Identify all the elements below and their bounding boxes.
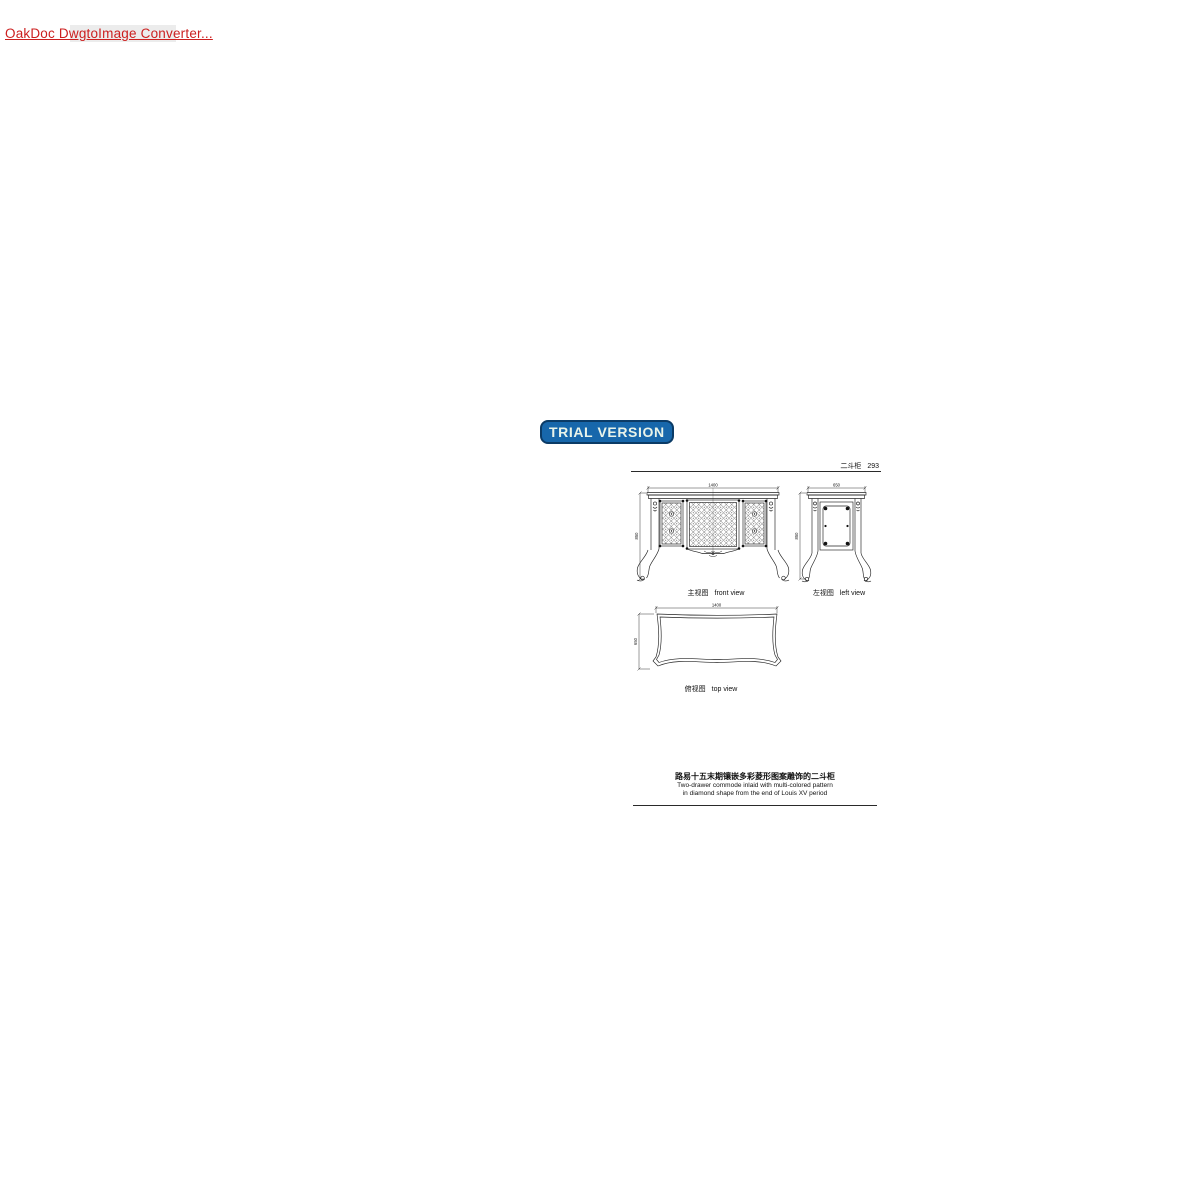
caption-subtitle-en-2: in diamond shape from the end of Louis X… bbox=[634, 790, 876, 798]
caption-title-zh: 路易十五末期镶嵌多彩菱形图案雕饰的二斗柜 bbox=[634, 772, 876, 782]
left-width-dim: 650 bbox=[833, 483, 841, 488]
left-view-drawing: 650 850 bbox=[795, 477, 883, 589]
top-view-label-zh: 俯视图 bbox=[685, 686, 706, 693]
sheet-header: 二斗柜293 bbox=[780, 461, 879, 471]
left-view-dimensions bbox=[799, 486, 867, 581]
top-width-dim: 1400 bbox=[712, 603, 722, 608]
sheet-top-rule bbox=[631, 471, 881, 472]
front-view-label-en: front view bbox=[715, 590, 745, 597]
front-height-dim: 850 bbox=[634, 532, 639, 540]
watermark-converter-link[interactable]: OakDoc DwgtoImage Converter... bbox=[5, 26, 213, 41]
top-view-label-en: top view bbox=[712, 686, 738, 693]
front-view-drawing: 1400 850 bbox=[630, 477, 792, 589]
left-view-label-en: left view bbox=[840, 590, 865, 597]
caption-subtitle-en-1: Two-drawer commode inlaid with multi-col… bbox=[634, 782, 876, 790]
front-view-commode bbox=[637, 488, 789, 581]
front-view-label: 主视图front view bbox=[656, 588, 776, 598]
left-view-label: 左视图left view bbox=[779, 588, 899, 598]
sheet-bottom-rule bbox=[633, 805, 877, 806]
front-width-dim: 1400 bbox=[708, 483, 718, 488]
drawing-caption: 路易十五末期镶嵌多彩菱形图案雕饰的二斗柜 Two-drawer commode … bbox=[634, 772, 876, 797]
sheet-header-title: 二斗柜 bbox=[840, 463, 861, 470]
top-view-label: 俯视图top view bbox=[651, 684, 771, 694]
trial-version-badge: TRIAL VERSION bbox=[540, 420, 674, 444]
left-height-dim: 850 bbox=[795, 532, 799, 540]
page: { "watermark": { "link_text": "OakDoc Dw… bbox=[0, 0, 1200, 1200]
top-view-outline bbox=[653, 614, 781, 666]
sheet-page-number: 293 bbox=[867, 463, 879, 470]
trial-version-label: TRIAL VERSION bbox=[549, 425, 665, 439]
top-view-drawing: 1400 650 bbox=[630, 599, 785, 687]
top-depth-dim: 650 bbox=[633, 637, 638, 645]
left-view-label-zh: 左视图 bbox=[813, 590, 834, 597]
front-view-label-zh: 主视图 bbox=[688, 590, 709, 597]
left-view-commode bbox=[802, 493, 871, 582]
